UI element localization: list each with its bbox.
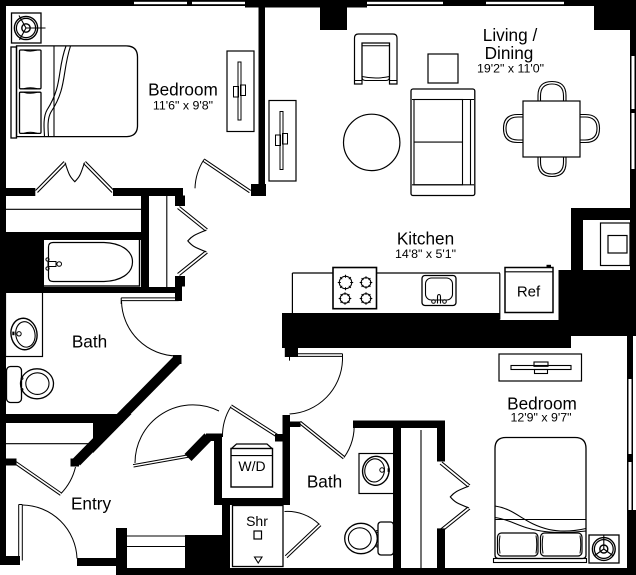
svg-text:19'2" x 11'0": 19'2" x 11'0" [477,62,544,76]
svg-text:14'8" x 5'1": 14'8" x 5'1" [395,247,456,261]
svg-text:Shr: Shr [246,513,268,529]
svg-text:11'6" x 9'8": 11'6" x 9'8" [153,99,213,113]
svg-text:Entry: Entry [71,494,112,514]
svg-text:Bath: Bath [307,472,342,492]
svg-text:Dining: Dining [485,43,534,63]
svg-text:12'9" x 9'7": 12'9" x 9'7" [510,410,571,424]
svg-text:W/D: W/D [238,458,265,474]
svg-text:Kitchen: Kitchen [397,229,454,249]
svg-text:Bath: Bath [72,332,107,352]
svg-text:Ref: Ref [517,284,541,301]
svg-text:Bedroom: Bedroom [148,80,218,100]
